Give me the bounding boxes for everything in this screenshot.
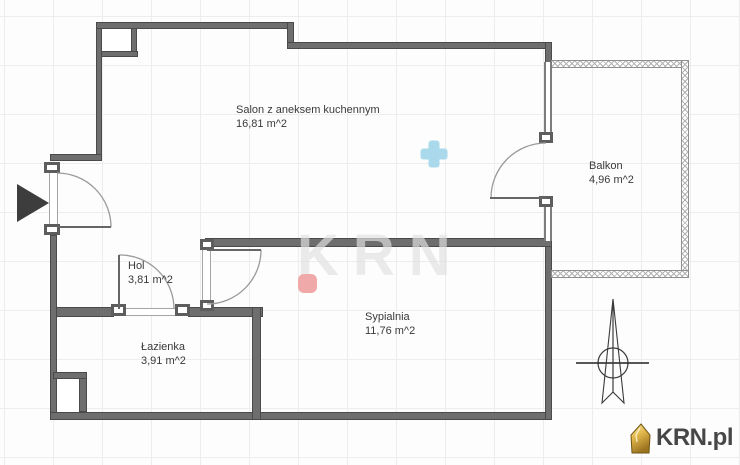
- floor-plan-canvas: KRN Salon z aneksem kuchennym: [0, 0, 740, 465]
- jamb-bathroom-right: [175, 304, 190, 316]
- balcony-door-arc: [491, 143, 546, 198]
- house-icon: [628, 422, 654, 456]
- jamb-bedroom-top: [200, 239, 214, 250]
- bathroom-door-opening: [126, 308, 175, 316]
- room-name: Łazienka: [141, 341, 186, 355]
- room-name: Hol: [128, 260, 173, 274]
- jamb-bathroom-left: [111, 304, 126, 316]
- logo-text: KRN.pl: [656, 422, 733, 454]
- jamb-entrance-bottom: [44, 224, 60, 235]
- balcony-wall-bottom: [551, 270, 689, 278]
- wall-left-step: [50, 154, 102, 161]
- wall-right-lower: [545, 239, 552, 420]
- room-name: Balkon: [589, 160, 634, 174]
- wall-left-lower: [50, 235, 57, 420]
- room-area: 3,81 m^2: [128, 274, 173, 288]
- entrance-door-arc: [57, 173, 111, 227]
- room-area: 16,81 m^2: [236, 118, 380, 132]
- jamb-balcony-top: [539, 132, 553, 143]
- room-label-hol: Hol 3,81 m^2: [128, 260, 173, 287]
- wall-left-upper: [96, 28, 102, 158]
- room-name: Sypialnia: [365, 311, 415, 325]
- room-name: Salon z aneksem kuchennym: [236, 104, 380, 118]
- plus-marker-icon: [421, 141, 448, 168]
- room-label-lazienka: Łazienka 3,91 m^2: [141, 341, 186, 368]
- room-label-sypialnia: Sypialnia 11,76 m^2: [365, 311, 415, 338]
- wall-lazienka-right: [252, 307, 261, 420]
- shaft-bottom-interior: [57, 379, 79, 412]
- entrance-arrow-icon: [17, 184, 49, 222]
- watermark-text: KRN: [297, 222, 465, 289]
- room-area: 11,76 m^2: [365, 325, 415, 339]
- window-balcony-lower: [544, 207, 552, 241]
- krn-logo: KRN.pl: [628, 422, 733, 456]
- wall-shaft-bottom: [96, 51, 138, 57]
- jamb-balcony-bottom: [539, 196, 553, 207]
- balcony-wall-right: [681, 60, 689, 278]
- balcony-wall-top: [551, 60, 689, 68]
- room-label-salon: Salon z aneksem kuchennym 16,81 m^2: [236, 104, 380, 131]
- jamb-entrance-top: [44, 162, 60, 173]
- room-label-balkon: Balkon 4,96 m^2: [589, 160, 634, 187]
- wall-top-left: [96, 22, 294, 29]
- room-area: 3,91 m^2: [141, 355, 186, 369]
- bedroom-door-arc: [207, 250, 261, 304]
- shaft-top-interior: [101, 28, 132, 52]
- north-arrow-icon: [576, 299, 649, 403]
- wall-top-right: [287, 42, 552, 49]
- jamb-bedroom-bottom: [200, 300, 214, 311]
- wall-shaft-right: [131, 28, 137, 53]
- window-balcony-upper: [544, 62, 552, 132]
- entrance-door-opening: [49, 173, 58, 224]
- room-area: 4,96 m^2: [589, 174, 634, 188]
- bedroom-door-opening: [202, 250, 211, 300]
- wall-hol-lazienka-left: [56, 307, 114, 317]
- wall-bottom: [50, 412, 552, 420]
- wall-shaft2-right: [79, 378, 87, 412]
